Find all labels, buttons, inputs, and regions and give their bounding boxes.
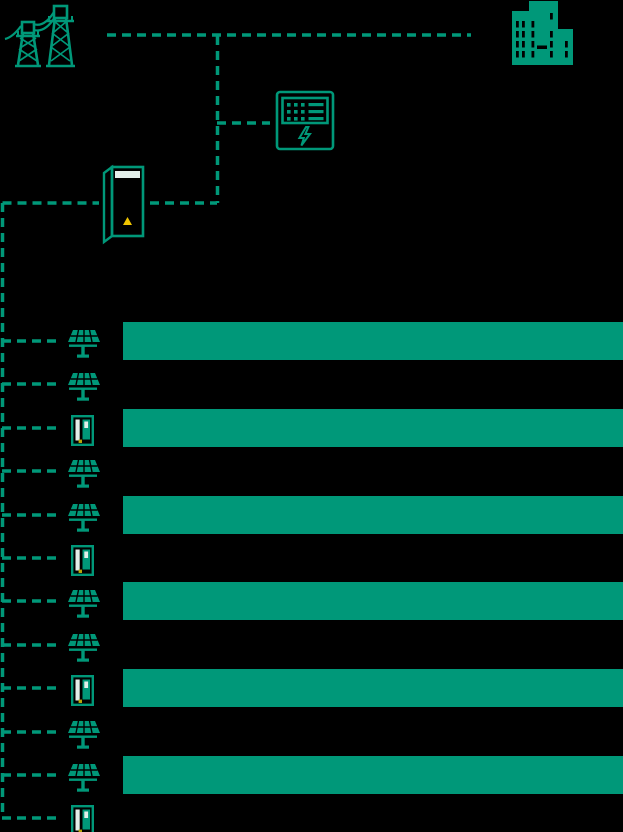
device-highlight-bar[interactable] [123, 496, 623, 534]
battery-cabinet-icon[interactable] [100, 163, 146, 245]
device-highlight-bar[interactable] [123, 409, 623, 447]
power-meter-icon[interactable] [275, 90, 335, 151]
power-meter-graphic [275, 90, 335, 151]
solar-panel-icon[interactable] [66, 330, 100, 358]
solar-panel-icon[interactable] [66, 504, 100, 532]
solar-panel-icon[interactable] [66, 460, 100, 488]
office-building-graphic [511, 1, 573, 65]
warning-triangle-icon [123, 217, 132, 225]
transmission-tower-icon[interactable] [4, 3, 78, 69]
solar-panel-icon[interactable] [66, 721, 100, 749]
lightning-bolt-icon [299, 127, 310, 146]
solar-panel-icon[interactable] [66, 373, 100, 401]
battery-cabinet-graphic [100, 163, 146, 245]
energy-flow-diagram [0, 0, 623, 832]
solar-panel-icon[interactable] [66, 634, 100, 662]
ev-charger-icon[interactable] [71, 415, 94, 446]
solar-panel-icon[interactable] [66, 590, 100, 618]
device-highlight-bar[interactable] [123, 756, 623, 794]
solar-panel-icon[interactable] [66, 764, 100, 792]
device-highlight-bar[interactable] [123, 669, 623, 707]
ev-charger-icon[interactable] [71, 805, 94, 832]
transmission-tower-graphic [4, 3, 78, 69]
device-highlight-bar[interactable] [123, 322, 623, 360]
device-highlight-bar[interactable] [123, 582, 623, 620]
office-building-icon[interactable] [511, 1, 573, 65]
ev-charger-icon[interactable] [71, 545, 94, 576]
ev-charger-icon[interactable] [71, 675, 94, 706]
